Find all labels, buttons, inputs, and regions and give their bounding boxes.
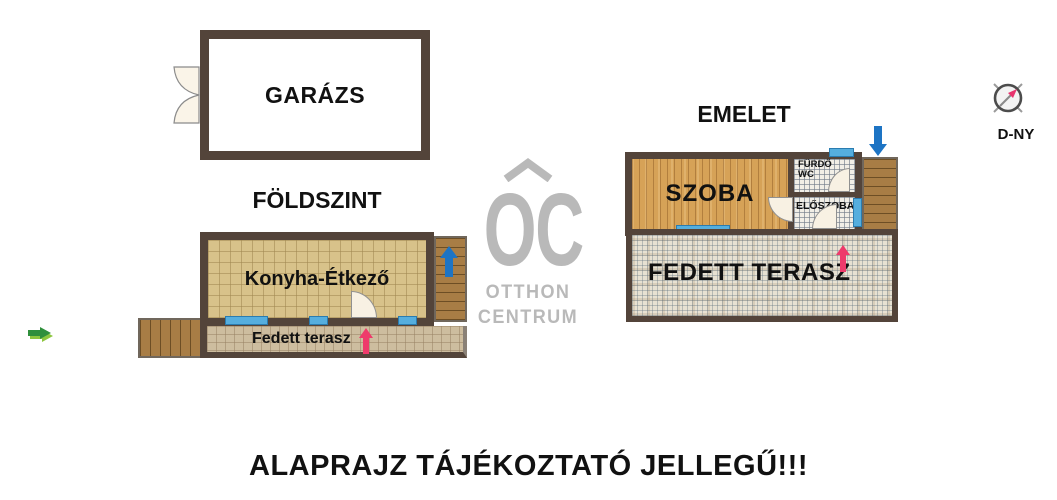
floorplan-canvas: GARÁZS FÖLDSZINT Konyha-Étkező Fedett te… <box>0 0 1057 500</box>
kitchen-window-3 <box>398 316 417 325</box>
garage-room: GARÁZS <box>200 30 430 160</box>
otthon-centrum-watermark: OC OTTHON CENTRUM <box>468 158 588 329</box>
garage-door-icon <box>170 64 201 126</box>
upper-covered-terrace: FEDETT TERASZ <box>626 229 898 322</box>
compass-icon <box>986 76 1030 120</box>
hallway-stair-door <box>853 198 862 227</box>
kitchen-dining-label: Konyha-Étkező <box>245 268 389 291</box>
bathroom-window <box>829 148 854 157</box>
ground-floor-title: FÖLDSZINT <box>198 187 436 214</box>
watermark-monogram: OC <box>484 183 573 278</box>
room-szoba: SZOBA <box>632 159 788 229</box>
bathroom-label: FÜRDŐ WC <box>798 160 832 181</box>
upper-floor-title: EMELET <box>663 101 825 128</box>
disclaimer-text: ALAPRAJZ TÁJÉKOZTATÓ JELLEGŰ!!! <box>0 450 1057 483</box>
kitchen-window-1 <box>225 316 268 325</box>
upper-terrace-entry-arrow-icon <box>836 245 850 272</box>
upper-terrace-label: FEDETT TERASZ <box>648 259 851 287</box>
ground-covered-terrace: Fedett terasz <box>200 326 467 358</box>
compass-direction-label: D-NY <box>980 126 1052 143</box>
watermark-name-line2: CENTRUM <box>471 307 585 329</box>
ground-left-deck <box>138 318 202 358</box>
deck-up-arrow-icon <box>440 246 458 277</box>
room-szoba-label: SZOBA <box>666 180 755 208</box>
garage-label: GARÁZS <box>265 82 365 109</box>
stairs-down-arrow-icon <box>869 126 887 156</box>
kitchen-dining-room: Konyha-Étkező <box>200 232 434 326</box>
site-direction-arrow-icon <box>28 326 55 342</box>
kitchen-window-2 <box>309 316 328 325</box>
ground-terrace-label: Fedett terasz <box>252 330 351 348</box>
watermark-name-line1: OTTHON <box>471 282 585 304</box>
terrace-entry-arrow-icon <box>359 328 373 354</box>
stairs <box>862 157 898 234</box>
